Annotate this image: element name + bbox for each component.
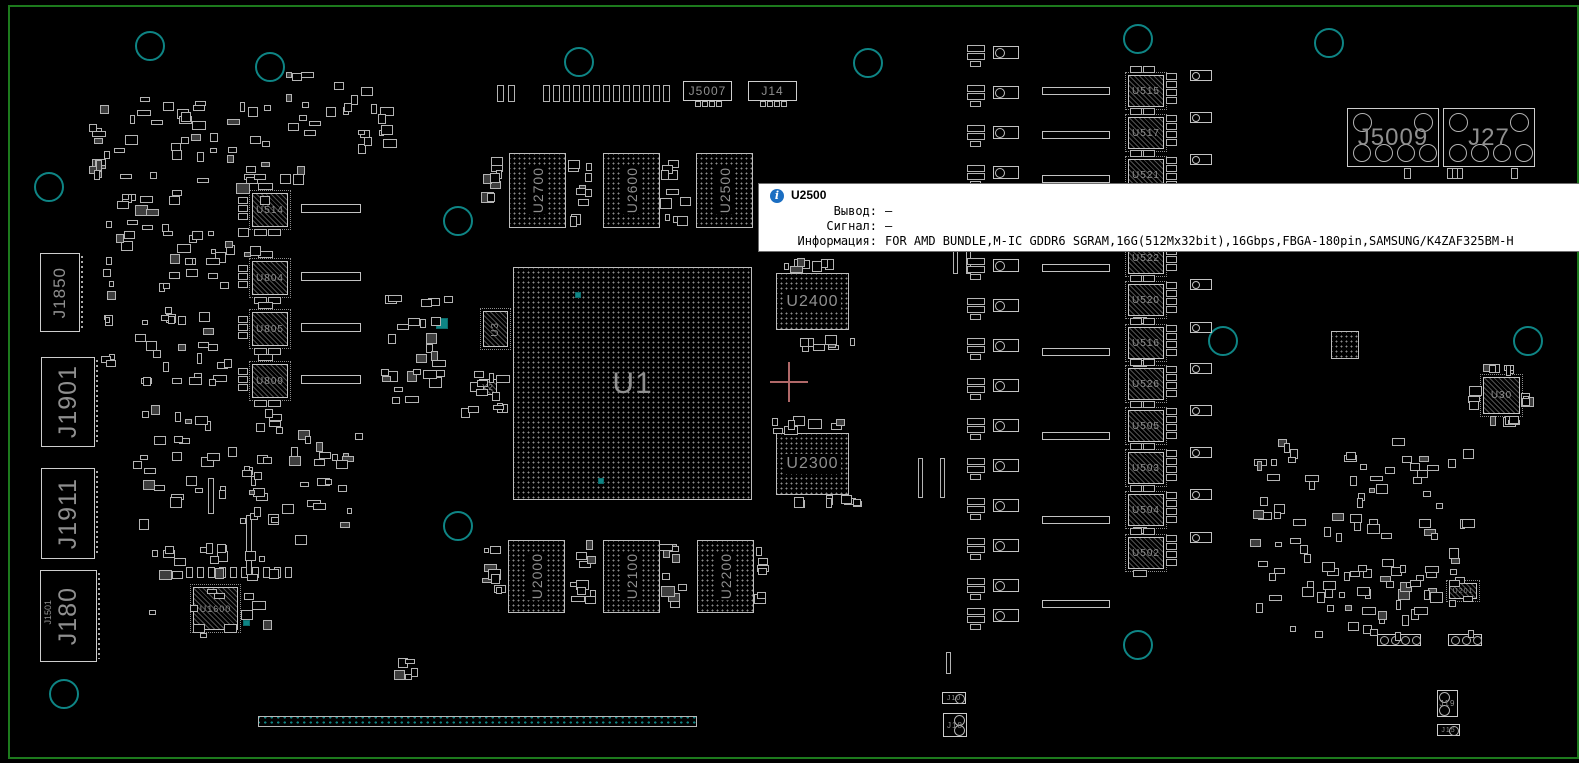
capacitor-pad xyxy=(1166,173,1177,180)
capacitor-pad xyxy=(967,173,985,180)
passive-component xyxy=(305,436,311,444)
mounting-hole xyxy=(34,172,64,202)
capacitor-pad xyxy=(1166,139,1177,146)
passive-component xyxy=(172,378,182,384)
passive-component xyxy=(1344,572,1350,581)
passive-component xyxy=(1293,519,1307,527)
passive-component xyxy=(193,624,205,633)
inductor xyxy=(1042,131,1110,139)
connector-J27[interactable]: J27 xyxy=(1443,108,1535,167)
passive-component xyxy=(186,269,198,277)
capacitor-pad xyxy=(1166,424,1177,431)
passive-component xyxy=(577,587,587,595)
capacitor-pad xyxy=(1130,275,1142,282)
connector-pin-hole xyxy=(1419,144,1437,162)
mounting-hole xyxy=(255,52,285,82)
passive-component xyxy=(1350,476,1357,485)
passive-component xyxy=(1430,592,1443,603)
passive-component xyxy=(1274,568,1284,574)
capacitor-pad xyxy=(238,281,248,288)
passive-component xyxy=(106,360,116,366)
connector-pin-hole xyxy=(1449,144,1467,162)
passive-component xyxy=(361,87,373,96)
passive-component xyxy=(808,338,814,347)
capacitor-pad xyxy=(970,514,981,520)
component-U504[interactable]: U504 xyxy=(1128,494,1164,526)
capacitor-pad xyxy=(970,594,981,600)
solder-pad xyxy=(246,515,252,575)
capacitor-pad xyxy=(1143,443,1155,450)
passive-component xyxy=(1317,592,1326,602)
solder-pad xyxy=(946,652,951,674)
connector-pin-hole xyxy=(1401,636,1410,645)
passive-component xyxy=(174,436,183,443)
passive-component xyxy=(100,105,109,114)
component-U1[interactable]: U1 xyxy=(513,267,752,500)
inductor-coil xyxy=(995,341,1005,351)
qfn-pad-ring xyxy=(1125,491,1167,529)
passive-component xyxy=(661,170,669,180)
connector-J18[interactable]: J18 xyxy=(943,713,967,737)
passive-component xyxy=(94,138,102,144)
passive-component xyxy=(793,416,805,426)
passive-component xyxy=(476,389,488,396)
connector-J10[interactable]: J10 xyxy=(942,692,966,704)
passive-component xyxy=(381,125,393,135)
passive-component xyxy=(163,283,170,289)
passive-component xyxy=(208,273,218,279)
connector-pin-hole xyxy=(954,725,965,736)
capacitor-pad xyxy=(1130,401,1142,408)
inductor xyxy=(1042,87,1110,95)
connector-J1850[interactable]: J1850 xyxy=(40,253,80,332)
passive-component xyxy=(1463,449,1474,459)
capacitor-pad xyxy=(1130,443,1142,450)
connector-J19[interactable]: J19 xyxy=(1437,690,1458,717)
passive-component xyxy=(388,334,396,344)
passive-component xyxy=(140,196,153,203)
connector-pin-hole xyxy=(1375,144,1393,162)
capacitor-pad xyxy=(967,386,985,393)
inductor xyxy=(1190,279,1212,290)
passive-component xyxy=(491,574,500,583)
passive-component xyxy=(794,497,804,508)
connector-J5007[interactable]: J5007 xyxy=(683,81,732,101)
passive-component xyxy=(217,544,226,553)
passive-component xyxy=(242,470,252,477)
passive-component xyxy=(1448,459,1456,468)
solder-pad xyxy=(186,567,193,578)
passive-component xyxy=(203,328,214,335)
passive-component xyxy=(378,114,386,124)
passive-component xyxy=(1327,605,1334,612)
inductor xyxy=(993,539,1019,552)
component-U502[interactable]: U502 xyxy=(1128,537,1164,569)
capacitor-pad xyxy=(1166,551,1177,558)
connector-pin-hole xyxy=(1471,144,1489,162)
passive-component xyxy=(1339,592,1345,599)
component-U805[interactable]: U805 xyxy=(252,312,288,346)
component-U515[interactable]: U515 xyxy=(1128,75,1164,107)
component-U503[interactable]: U503 xyxy=(1128,452,1164,484)
passive-component xyxy=(1423,491,1431,497)
component-U517[interactable]: U517 xyxy=(1128,117,1164,149)
passive-component xyxy=(265,409,273,419)
passive-component xyxy=(797,258,805,267)
inductor xyxy=(1190,322,1212,333)
capacitor-pad xyxy=(1166,157,1177,164)
passive-component xyxy=(210,556,220,563)
passive-component xyxy=(784,263,790,270)
passive-component xyxy=(238,228,249,237)
passive-component xyxy=(1451,558,1460,563)
capacitor-pad xyxy=(1130,485,1142,492)
passive-component xyxy=(89,124,97,133)
inductor xyxy=(301,375,361,384)
passive-component xyxy=(408,318,420,326)
passive-component xyxy=(336,460,347,468)
connector-pin-hole xyxy=(1473,636,1482,645)
passive-component xyxy=(146,209,158,216)
component-label: U1 xyxy=(514,268,751,499)
passive-component xyxy=(1419,456,1429,462)
tooltip-pin-label: Вывод: xyxy=(759,204,877,218)
passive-component xyxy=(571,596,585,602)
component-U2000[interactable]: U2000 xyxy=(508,540,565,613)
inductor xyxy=(1042,432,1110,440)
capacitor-pad xyxy=(970,101,981,107)
inductor xyxy=(993,86,1019,99)
component-label: U2600 xyxy=(604,154,659,227)
passive-component xyxy=(1402,456,1412,462)
capacitor-pad xyxy=(970,141,981,147)
passive-component xyxy=(314,459,324,466)
inductor xyxy=(1042,516,1110,524)
passive-component xyxy=(170,497,182,508)
passive-component xyxy=(1357,587,1370,596)
passive-component xyxy=(585,596,596,604)
component-U526[interactable]: U526 xyxy=(1128,368,1164,400)
capacitor-pad xyxy=(967,498,985,505)
mounting-hole xyxy=(564,47,594,77)
tooltip-row-pin: Вывод:— xyxy=(759,204,892,218)
connector-pin-hole xyxy=(1515,144,1533,162)
passive-component xyxy=(261,162,270,167)
component-U2500[interactable]: U2500 xyxy=(696,153,753,228)
passive-component xyxy=(1414,607,1427,615)
connector-pin-hole xyxy=(1449,726,1459,736)
passive-component xyxy=(666,189,679,195)
component-label: U2400 xyxy=(777,274,848,329)
connector-pin-hole xyxy=(1493,144,1511,162)
capacitor-pad xyxy=(967,586,985,593)
passive-component xyxy=(169,196,180,205)
passive-component xyxy=(137,110,151,116)
passive-component xyxy=(114,148,126,153)
passive-component xyxy=(199,312,210,322)
capacitor-pad xyxy=(238,197,248,204)
connector-J15[interactable]: J15 xyxy=(1437,724,1460,736)
connector-pin xyxy=(695,101,701,107)
capacitor-pad xyxy=(1166,432,1177,439)
connector-J1911[interactable]: J1911 xyxy=(41,468,95,559)
passive-component xyxy=(304,130,316,136)
passive-component xyxy=(172,150,182,160)
passive-component xyxy=(585,173,592,182)
inductor-coil xyxy=(1192,281,1200,289)
component-label: J5007 xyxy=(684,82,731,100)
passive-component xyxy=(300,482,309,488)
passive-component xyxy=(411,668,419,677)
inductor xyxy=(993,459,1019,472)
passive-component xyxy=(405,659,415,664)
passive-component xyxy=(1392,438,1404,446)
connector-strip[interactable] xyxy=(1448,634,1482,646)
passive-component xyxy=(1400,565,1406,573)
inductor xyxy=(993,579,1019,592)
passive-component xyxy=(421,299,432,308)
passive-component xyxy=(154,436,167,445)
passive-component xyxy=(139,519,150,530)
component-label: U2000 xyxy=(509,541,564,612)
passive-component xyxy=(1402,615,1409,626)
capacitor-pad xyxy=(1166,450,1177,457)
capacitor-pad xyxy=(967,266,985,273)
bga-pad-array xyxy=(1331,331,1359,359)
passive-component xyxy=(1376,484,1388,494)
capacitor-pad xyxy=(1166,543,1177,550)
capacitor-pad xyxy=(967,258,985,265)
passive-component xyxy=(247,574,258,581)
connector-pin-hole xyxy=(1439,692,1450,703)
passive-component xyxy=(1275,542,1281,547)
passive-component xyxy=(168,316,175,324)
passive-component xyxy=(150,172,156,178)
capacitor-pad xyxy=(967,608,985,615)
passive-component xyxy=(116,234,124,243)
connector-pin-hole xyxy=(1451,636,1460,645)
passive-component xyxy=(309,121,321,126)
component-U3[interactable]: U3 xyxy=(483,311,508,347)
connector-pin xyxy=(774,101,780,107)
passive-component xyxy=(853,499,860,506)
passive-component xyxy=(444,296,453,304)
passive-component xyxy=(1256,603,1263,613)
passive-component xyxy=(1427,465,1440,471)
passive-component xyxy=(120,174,132,180)
inductor-coil xyxy=(995,381,1005,391)
passive-component xyxy=(1332,513,1344,521)
passive-component xyxy=(1370,476,1383,481)
inductor xyxy=(1190,489,1212,500)
connector-pin-hole xyxy=(1449,113,1468,132)
passive-component xyxy=(170,254,180,265)
passive-component xyxy=(1463,596,1474,602)
component-U505[interactable]: U505 xyxy=(1128,410,1164,442)
capacitor-pad xyxy=(1166,559,1177,566)
component-U2700[interactable]: U2700 xyxy=(509,153,566,228)
capacitor-pad xyxy=(268,229,281,236)
passive-component xyxy=(1386,581,1394,588)
passive-component xyxy=(142,225,153,230)
passive-component xyxy=(568,160,581,169)
capacitor-pad xyxy=(1166,408,1177,415)
passive-component xyxy=(821,259,828,269)
capacitor-pad xyxy=(970,474,981,480)
component-U2400[interactable]: U2400 xyxy=(776,273,849,330)
passive-component xyxy=(850,338,855,347)
inductor-coil xyxy=(995,168,1005,178)
solder-pad xyxy=(593,85,600,102)
passive-component xyxy=(96,160,103,171)
passive-component xyxy=(195,488,202,493)
passive-component xyxy=(197,178,209,183)
passive-component xyxy=(269,569,279,579)
connector-J14[interactable]: J14 xyxy=(748,81,797,101)
component-U809[interactable]: U809 xyxy=(252,364,288,398)
edge-connector[interactable] xyxy=(258,716,697,727)
capacitor-pad xyxy=(970,61,981,67)
passive-component xyxy=(245,551,256,561)
passive-component xyxy=(313,503,326,510)
passive-component xyxy=(662,573,671,580)
passive-component xyxy=(1315,631,1323,637)
passive-component xyxy=(224,624,237,633)
mounting-hole xyxy=(1123,630,1153,660)
passive-component xyxy=(1348,622,1359,631)
capacitor-pad xyxy=(1143,401,1155,408)
inductor xyxy=(993,166,1019,179)
connector-J180[interactable]: J1501J180 xyxy=(40,570,97,662)
connector-J1901[interactable]: J1901 xyxy=(41,357,95,447)
passive-component xyxy=(191,134,201,141)
capacitor-pad xyxy=(254,229,267,236)
solder-pad xyxy=(613,85,620,102)
mounting-hole xyxy=(49,679,79,709)
passive-component xyxy=(225,241,234,248)
component-U30[interactable]: U30 xyxy=(1483,377,1520,414)
connector-pin-hole xyxy=(1397,144,1415,162)
passive-component xyxy=(788,420,794,430)
pcb-board: U1U2700U2600U2500U2000U2100U2200U2400U23… xyxy=(0,0,1579,763)
connector-pin xyxy=(760,101,766,107)
component-U2300[interactable]: U2300 xyxy=(776,433,849,495)
passive-component xyxy=(1396,600,1401,610)
passive-component xyxy=(340,522,350,528)
passive-component xyxy=(271,517,279,522)
passive-component xyxy=(195,416,208,425)
inductor xyxy=(993,339,1019,352)
passive-component xyxy=(487,193,494,202)
passive-component xyxy=(159,570,172,581)
capacitor-pad xyxy=(967,45,985,52)
passive-component xyxy=(344,103,352,112)
inductor xyxy=(993,259,1019,272)
capacitor-pad xyxy=(1166,508,1177,515)
component-U2600[interactable]: U2600 xyxy=(603,153,660,228)
connector-J5009[interactable]: J5009 xyxy=(1347,108,1439,167)
passive-component xyxy=(413,369,421,375)
passive-component xyxy=(286,94,291,102)
capacitor-pad xyxy=(238,324,248,331)
inductor-coil xyxy=(1192,449,1200,457)
capacitor-pad xyxy=(238,265,248,272)
component-U804[interactable]: U804 xyxy=(252,261,288,295)
passive-component xyxy=(144,468,156,474)
solder-pad xyxy=(497,85,504,102)
capacitor-pad xyxy=(967,346,985,353)
qfn-pad-ring xyxy=(249,190,291,230)
passive-component xyxy=(371,104,377,115)
capacitor-pad xyxy=(967,538,985,545)
qfn-pad-ring xyxy=(249,258,291,298)
connector-pin-hole xyxy=(1439,705,1450,716)
passive-component xyxy=(106,257,112,265)
connector-pin-hole xyxy=(955,694,965,704)
passive-component xyxy=(210,133,219,142)
inductor xyxy=(301,204,361,213)
inductor xyxy=(1042,600,1110,608)
capacitor-pad xyxy=(1143,318,1155,325)
passive-component xyxy=(175,412,182,422)
capacitor-pad xyxy=(967,93,985,100)
passive-component xyxy=(1323,581,1336,590)
passive-component xyxy=(319,452,331,459)
component-U514[interactable]: U514 xyxy=(252,193,288,227)
passive-component xyxy=(1385,467,1395,475)
capacitor-pad xyxy=(1166,474,1177,481)
capacitor-pad xyxy=(1143,359,1155,366)
connector-pin-hole xyxy=(1380,636,1389,645)
passive-component xyxy=(163,102,175,112)
component-label: J1901 xyxy=(42,358,94,446)
inductor xyxy=(301,323,361,332)
passive-component xyxy=(189,377,202,384)
component-U520[interactable]: U520 xyxy=(1128,284,1164,316)
capacitor-pad xyxy=(967,506,985,513)
passive-component xyxy=(107,291,116,300)
capacitor-pad xyxy=(1166,73,1177,80)
passive-component xyxy=(813,344,825,351)
passive-component xyxy=(388,295,402,302)
boardview-canvas[interactable]: U1U2700U2600U2500U2000U2100U2200U2400U23… xyxy=(0,0,1579,763)
passive-component xyxy=(758,568,767,575)
passive-component xyxy=(432,360,445,367)
passive-component xyxy=(431,317,441,326)
component-U2200[interactable]: U2200 xyxy=(697,540,754,613)
passive-component xyxy=(244,593,254,600)
solder-pad xyxy=(208,567,215,578)
passive-component xyxy=(773,428,782,434)
passive-component xyxy=(1336,533,1343,541)
passive-component xyxy=(250,246,260,256)
passive-component xyxy=(163,362,169,372)
passive-component xyxy=(665,214,671,221)
component-U516[interactable]: U516 xyxy=(1128,327,1164,359)
passive-component xyxy=(152,550,157,557)
capacitor-pad xyxy=(970,434,981,440)
solder-pad xyxy=(553,85,560,102)
component-U2100[interactable]: U2100 xyxy=(603,540,660,613)
passive-component xyxy=(358,130,365,135)
passive-component xyxy=(252,601,266,610)
inductor-coil xyxy=(995,421,1005,431)
passive-component xyxy=(490,546,501,554)
passive-component xyxy=(1416,575,1423,581)
passive-component xyxy=(174,558,186,566)
passive-component xyxy=(143,480,155,490)
passive-component xyxy=(496,587,502,594)
